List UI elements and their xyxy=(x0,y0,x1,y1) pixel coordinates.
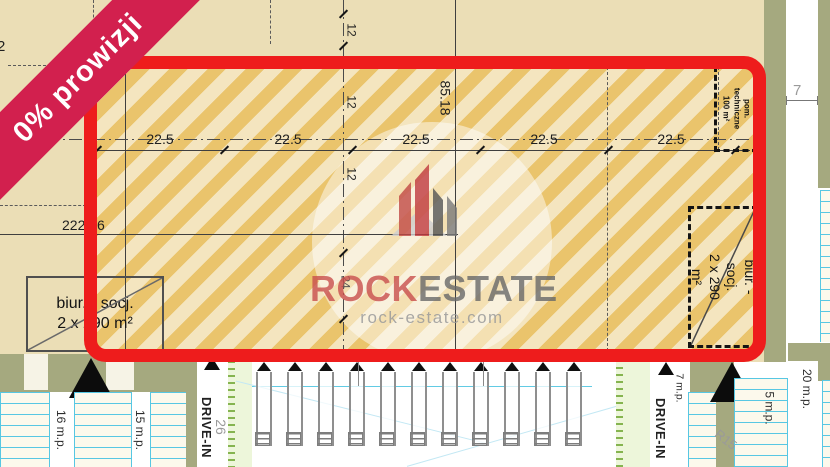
dock-lane xyxy=(411,372,427,446)
sidewalk-notch xyxy=(24,354,48,390)
drive-in-label-right: DRIVE-IN xyxy=(650,390,672,466)
dim-bay-1: 12 xyxy=(344,14,359,46)
dock-leveler-icon xyxy=(410,432,425,446)
parking-count-16: 16 m.p. xyxy=(48,392,74,467)
site-plan-canvas: 16 m.p. 15 m.p. 26 DRIVE-IN 7 m.p. DRIVE… xyxy=(0,0,830,467)
dock-lane xyxy=(349,372,365,446)
arrow-up-icon xyxy=(474,362,488,371)
dock-leveler-icon xyxy=(286,432,301,446)
parking-count-7: 7 m.p. xyxy=(672,364,688,412)
dim-offset-end xyxy=(817,96,818,105)
parking-right-edge-upper xyxy=(820,190,830,342)
parking-count-15: 15 m.p. xyxy=(130,392,150,467)
dock-leveler-icon xyxy=(255,432,270,446)
dock-lane xyxy=(442,372,458,446)
parking-count-20: 20 m.p. xyxy=(798,358,816,420)
green-strip-right xyxy=(764,0,786,362)
dock-lane xyxy=(380,372,396,446)
arrow-up-icon xyxy=(567,362,581,371)
arrow-up-icon xyxy=(350,362,364,371)
dock-leveler-icon xyxy=(565,432,580,446)
dock-lanes xyxy=(252,360,592,467)
dock-leveler-icon xyxy=(379,432,394,446)
dock-leveler-icon xyxy=(534,432,549,446)
dim-offset-line xyxy=(786,100,818,101)
arrow-up-icon xyxy=(412,362,426,371)
dock-lane xyxy=(256,372,272,446)
dim-offset-right: 7 xyxy=(793,82,801,99)
dock-lane xyxy=(287,372,303,446)
parking-block-left-c xyxy=(150,392,188,467)
highlight-border xyxy=(84,56,766,362)
dock-lane xyxy=(504,372,520,446)
dim-edge-cut: 2 xyxy=(0,38,5,55)
dock-leveler-icon xyxy=(441,432,456,446)
arrow-up-icon xyxy=(536,362,550,371)
ramp-strip-left xyxy=(228,354,252,467)
ramp-strip-right xyxy=(616,360,650,467)
parking-count-5: 5 m.p. xyxy=(762,384,778,432)
arrow-up-icon xyxy=(381,362,395,371)
dock-leveler-icon xyxy=(503,432,518,446)
dock-lane xyxy=(566,372,582,446)
dock-lane xyxy=(318,372,334,446)
dock-leveler-icon xyxy=(472,432,487,446)
parking-block-5 xyxy=(734,378,788,467)
dock-yard xyxy=(252,360,592,467)
yard-divider xyxy=(358,362,359,386)
dock-lane xyxy=(535,372,551,446)
grid-dash-v xyxy=(270,0,271,44)
dim-offset-end xyxy=(786,96,787,105)
arrow-up-icon xyxy=(288,362,302,371)
dock-lane xyxy=(473,372,489,446)
dock-leveler-icon xyxy=(348,432,363,446)
parking-right-edge-lower xyxy=(822,380,830,467)
arrow-up-icon xyxy=(257,362,271,371)
arrow-up-icon xyxy=(443,362,457,371)
dock-leveler-icon xyxy=(317,432,332,446)
parking-block-left-b xyxy=(74,392,132,467)
grid-dash-h xyxy=(0,205,86,206)
parking-block-left-a xyxy=(0,392,50,467)
arrow-up-icon xyxy=(505,362,519,371)
drive-in-label-left: DRIVE-IN xyxy=(194,388,220,466)
yard-divider xyxy=(483,362,484,386)
arrow-up-icon xyxy=(319,362,333,371)
green-strip-far-right xyxy=(818,0,830,188)
green-patch-right-edge xyxy=(818,343,830,381)
